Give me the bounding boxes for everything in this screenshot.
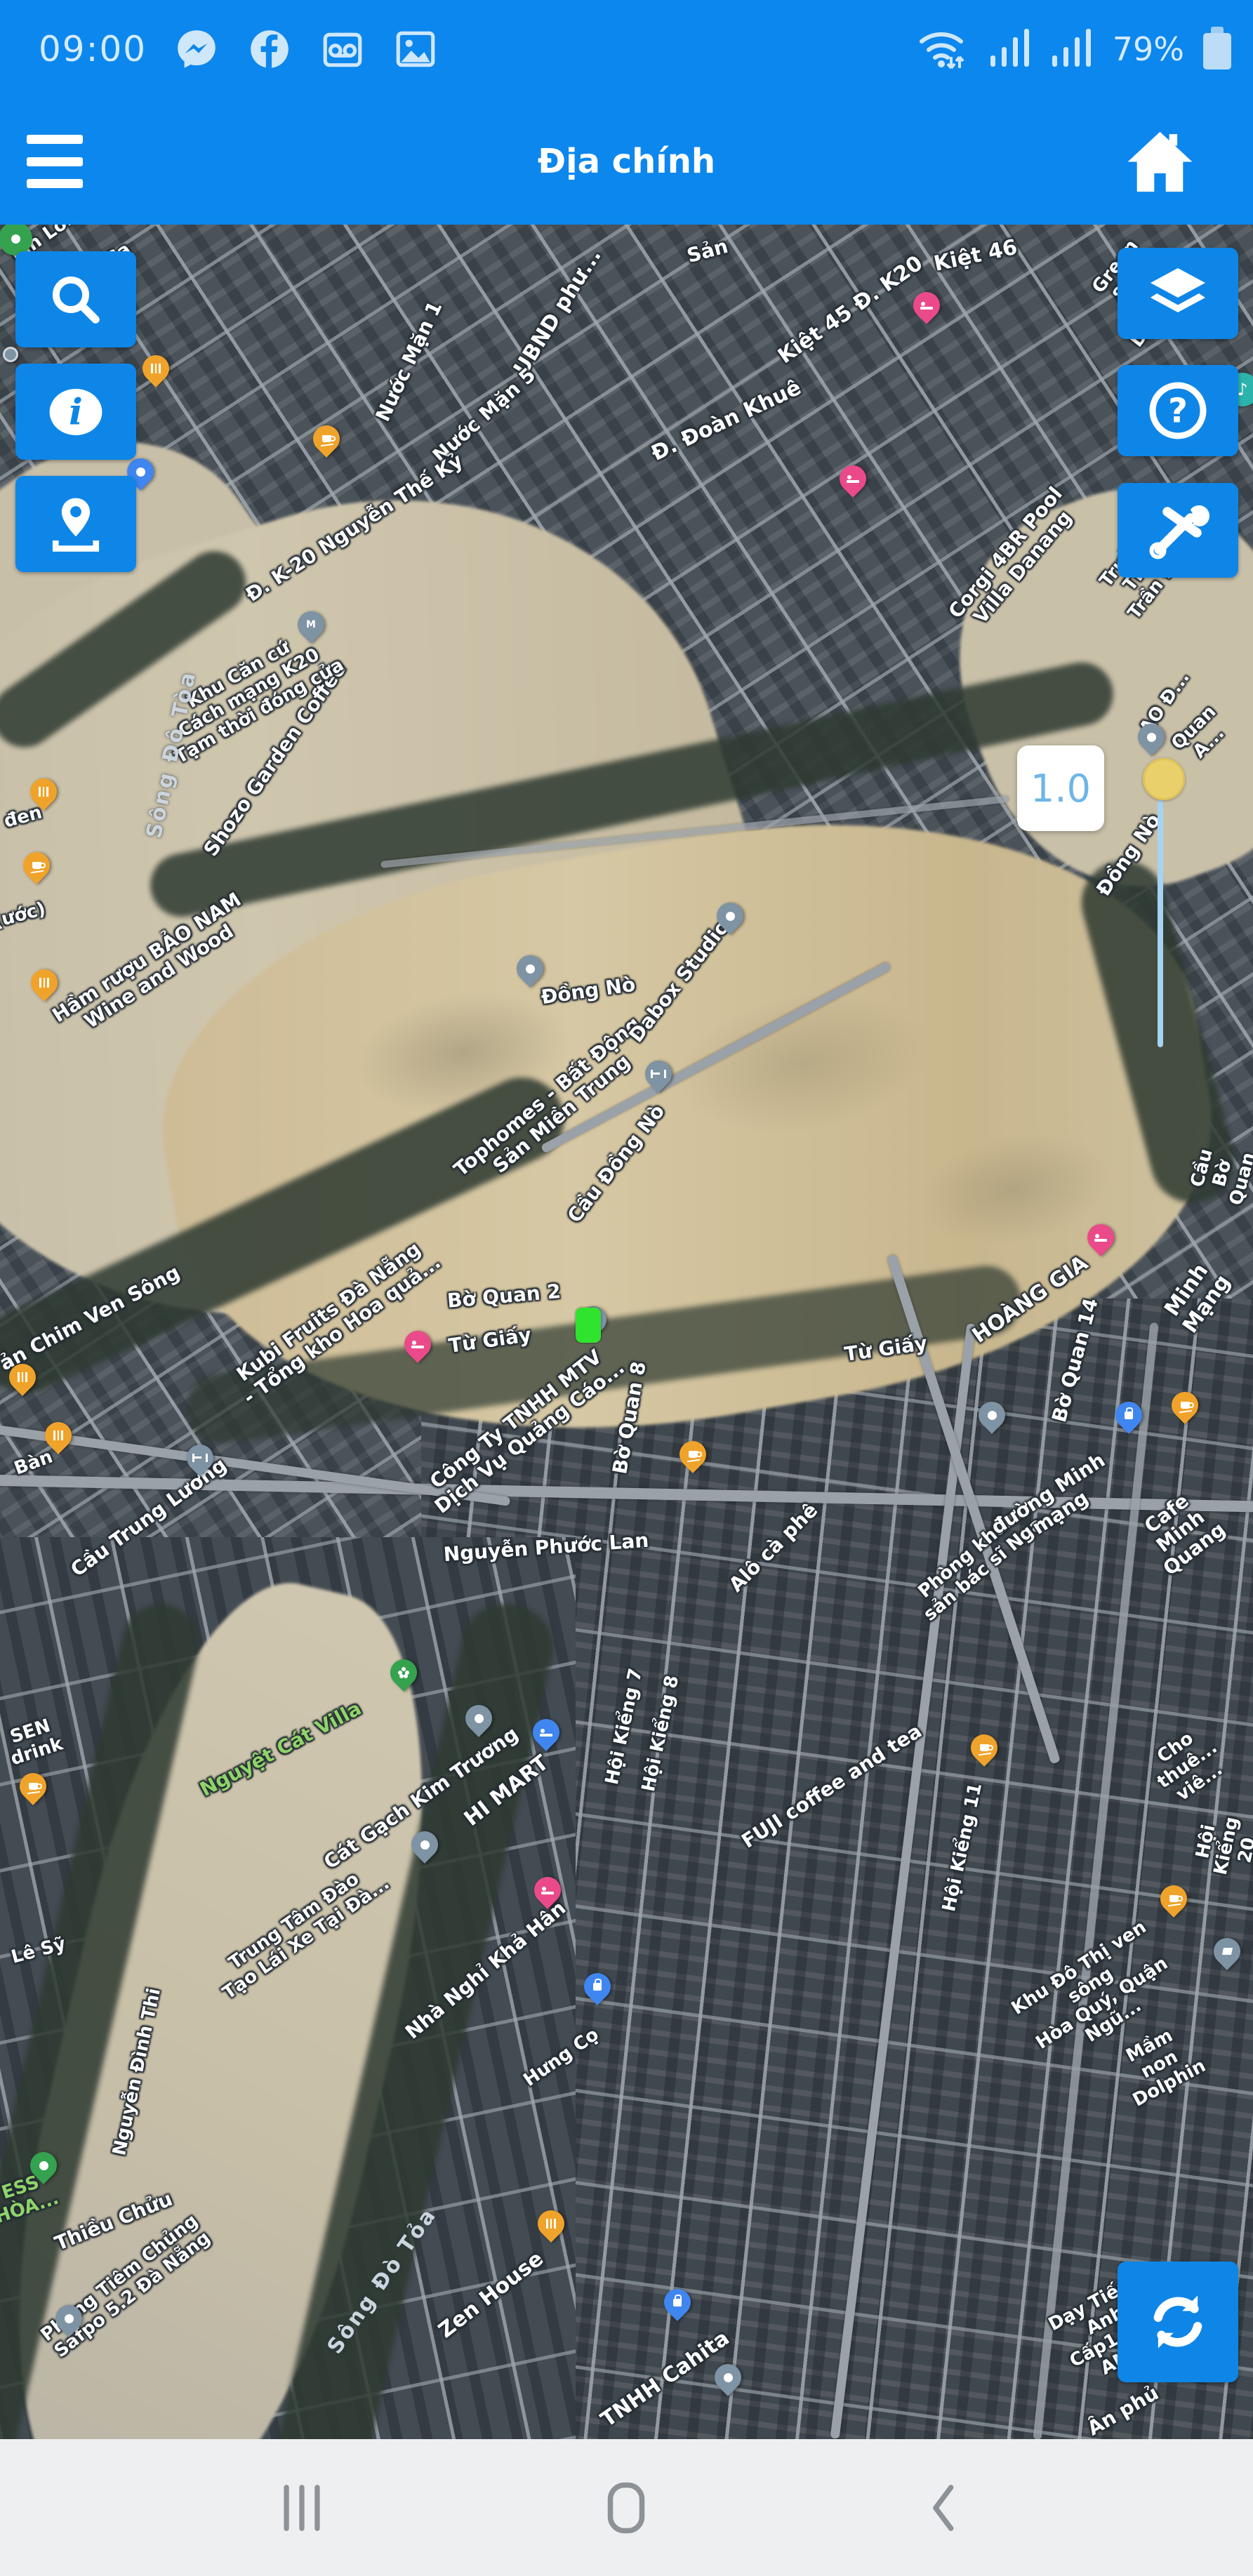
recents-button[interactable] — [232, 2439, 372, 2576]
bag-glyph-icon — [1125, 1412, 1133, 1419]
map-marker-dot[interactable] — [460, 1699, 498, 1737]
cup-glyph-icon — [689, 1451, 698, 1458]
status-time: 09:00 — [39, 29, 147, 69]
info-button[interactable]: i — [15, 364, 136, 460]
refresh-icon — [1143, 2287, 1213, 2357]
bed-glyph-icon — [1094, 1234, 1107, 1242]
map-marker-dot[interactable] — [711, 897, 749, 935]
map-marker-cup[interactable] — [1155, 1880, 1193, 1918]
dot-glyph-icon — [475, 1714, 484, 1723]
voicemail-icon — [319, 26, 366, 72]
page-title: Địa chính — [0, 142, 1253, 181]
signal-icon — [989, 25, 1033, 74]
bag-glyph-icon — [673, 2299, 682, 2306]
zoom-slider-handle[interactable] — [1143, 758, 1185, 800]
map-canvas[interactable]: inh Lơing Sinh CaUBND phư...Kiệt 46SảnKi… — [0, 225, 1253, 2439]
map-marker-brightgreen[interactable] — [576, 1308, 601, 1343]
map-marker-gray[interactable] — [3, 347, 18, 362]
help-icon: ? — [1144, 377, 1212, 444]
bed-glyph-icon — [540, 1729, 552, 1737]
map-marker-dot[interactable] — [511, 950, 549, 988]
map-marker-fork[interactable] — [4, 1358, 41, 1396]
back-icon — [917, 2481, 972, 2535]
help-button[interactable]: ? — [1118, 365, 1238, 456]
bed-glyph-icon — [411, 1341, 424, 1348]
dot-glyph-icon — [11, 234, 20, 244]
info-icon: i — [44, 380, 108, 444]
dot-glyph-icon — [726, 912, 735, 921]
cup-glyph-icon — [1169, 1895, 1179, 1902]
flower-glyph-icon — [398, 1667, 409, 1678]
bed-glyph-icon — [847, 475, 859, 483]
refresh-button[interactable] — [1118, 2262, 1238, 2382]
tools-icon — [1144, 497, 1212, 564]
dot-glyph-icon — [420, 1840, 430, 1850]
zoom-level-value: 1.0 — [1030, 766, 1091, 811]
map-marker-fork[interactable] — [25, 964, 63, 1002]
bed-glyph-icon — [541, 1887, 554, 1894]
facebook-icon — [246, 26, 293, 72]
signal-icon — [1051, 25, 1094, 74]
dot-glyph-icon — [988, 1411, 997, 1420]
map-marker-fork[interactable] — [532, 2205, 570, 2243]
layers-icon — [1144, 260, 1212, 327]
map-marker-bed[interactable] — [1082, 1219, 1120, 1256]
map-marker-fork[interactable] — [39, 1416, 77, 1454]
android-nav-bar — [0, 2439, 1253, 2576]
fork-glyph-icon — [546, 2219, 556, 2229]
dot-glyph-icon — [526, 964, 535, 974]
map-marker-m[interactable]: M — [292, 606, 330, 644]
fork-glyph-icon — [151, 364, 161, 373]
dot-glyph-icon — [65, 2314, 74, 2323]
map-marker-dot[interactable] — [25, 2146, 62, 2184]
messenger-icon — [173, 26, 220, 72]
fork-glyph-icon — [39, 787, 48, 797]
tools-button[interactable] — [1118, 483, 1238, 578]
map-marker-fork[interactable] — [25, 773, 62, 811]
cup-glyph-icon — [29, 1783, 38, 1790]
note-glyph-icon: ♪ — [1237, 380, 1247, 399]
dot-glyph-icon — [136, 467, 145, 477]
map-marker-dot[interactable] — [973, 1396, 1011, 1434]
bridge-glyph-icon — [651, 1070, 666, 1078]
map-marker-dot[interactable] — [1132, 718, 1170, 756]
search-button[interactable] — [15, 251, 136, 347]
bed-glyph-icon — [920, 302, 933, 310]
map-marker-bed[interactable] — [529, 1871, 566, 1909]
map-marker-book[interactable] — [1208, 1932, 1246, 1970]
map-marker-bed[interactable] — [908, 286, 946, 324]
fork-glyph-icon — [39, 978, 49, 988]
map-marker-cup[interactable] — [674, 1435, 712, 1473]
zoom-level-badge: 1.0 — [1017, 745, 1104, 831]
map-marker-bag[interactable] — [578, 1967, 616, 2005]
map-marker-cup[interactable] — [965, 1729, 1003, 1767]
dot-glyph-icon — [39, 2161, 48, 2170]
fork-glyph-icon — [18, 1372, 27, 1382]
battery-percent: 79% — [1113, 30, 1184, 68]
home-nav-icon — [598, 2480, 654, 2536]
status-bar: 09:00 79% — [0, 0, 1253, 98]
drop-marker-icon — [44, 492, 108, 557]
bag-glyph-icon — [593, 1983, 602, 1991]
map-marker-bridge[interactable] — [181, 1439, 219, 1477]
map-marker-flower[interactable] — [385, 1654, 423, 1692]
map-marker-bed[interactable] — [527, 1713, 565, 1751]
book-glyph-icon — [1221, 1948, 1232, 1955]
cup-glyph-icon — [32, 862, 41, 869]
gallery-icon — [392, 26, 439, 72]
layers-button[interactable] — [1118, 248, 1238, 339]
map-marker-dot[interactable] — [709, 2358, 747, 2396]
m-glyph-icon: M — [306, 619, 316, 630]
cup-glyph-icon — [322, 435, 331, 442]
map-marker-cup[interactable] — [18, 847, 55, 884]
search-icon — [44, 268, 107, 331]
cup-glyph-icon — [1181, 1402, 1190, 1409]
map-marker-bridge[interactable] — [639, 1055, 677, 1093]
back-button[interactable] — [874, 2439, 1014, 2576]
home-nav-button[interactable] — [556, 2439, 696, 2576]
map-marker-cup[interactable] — [1166, 1386, 1204, 1424]
map-marker-bed[interactable] — [399, 1325, 437, 1363]
map-marker-bag[interactable] — [658, 2283, 696, 2321]
fork-glyph-icon — [53, 1430, 63, 1440]
svg-text:i: i — [69, 390, 83, 433]
wifi-icon — [912, 23, 971, 75]
bridge-glyph-icon — [192, 1454, 208, 1462]
map-marker-fork[interactable] — [137, 350, 175, 387]
map-marker-cup[interactable] — [307, 420, 345, 458]
drop-marker-button[interactable] — [15, 476, 136, 572]
app-bar: Địa chính — [0, 98, 1253, 225]
map-marker-cup[interactable] — [14, 1767, 52, 1805]
battery-icon — [1202, 27, 1232, 72]
dot-glyph-icon — [1147, 733, 1156, 742]
home-button[interactable] — [1123, 125, 1197, 199]
recents-icon — [274, 2481, 329, 2535]
map-marker-bag[interactable] — [1110, 1396, 1148, 1434]
map-marker-bed[interactable] — [834, 460, 872, 498]
dot-glyph-icon — [724, 2373, 733, 2382]
zoom-slider-track[interactable] — [1158, 800, 1163, 1047]
map-marker-dot[interactable] — [406, 1826, 444, 1864]
svg-text:?: ? — [1168, 392, 1188, 431]
map-marker-dot[interactable] — [50, 2299, 88, 2337]
cup-glyph-icon — [980, 1744, 989, 1751]
